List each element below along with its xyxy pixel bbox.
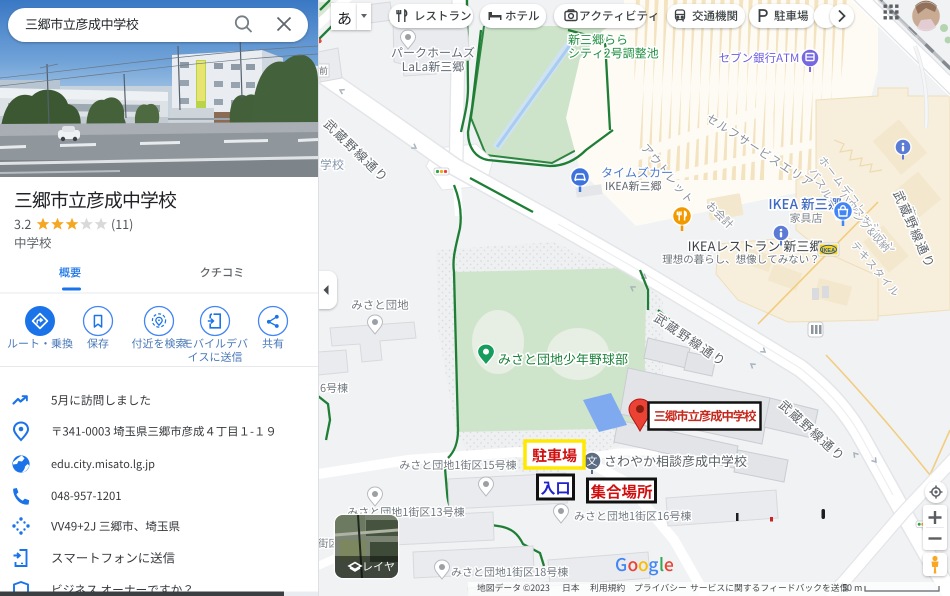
svg-text:IKEA: IKEA xyxy=(822,248,835,254)
